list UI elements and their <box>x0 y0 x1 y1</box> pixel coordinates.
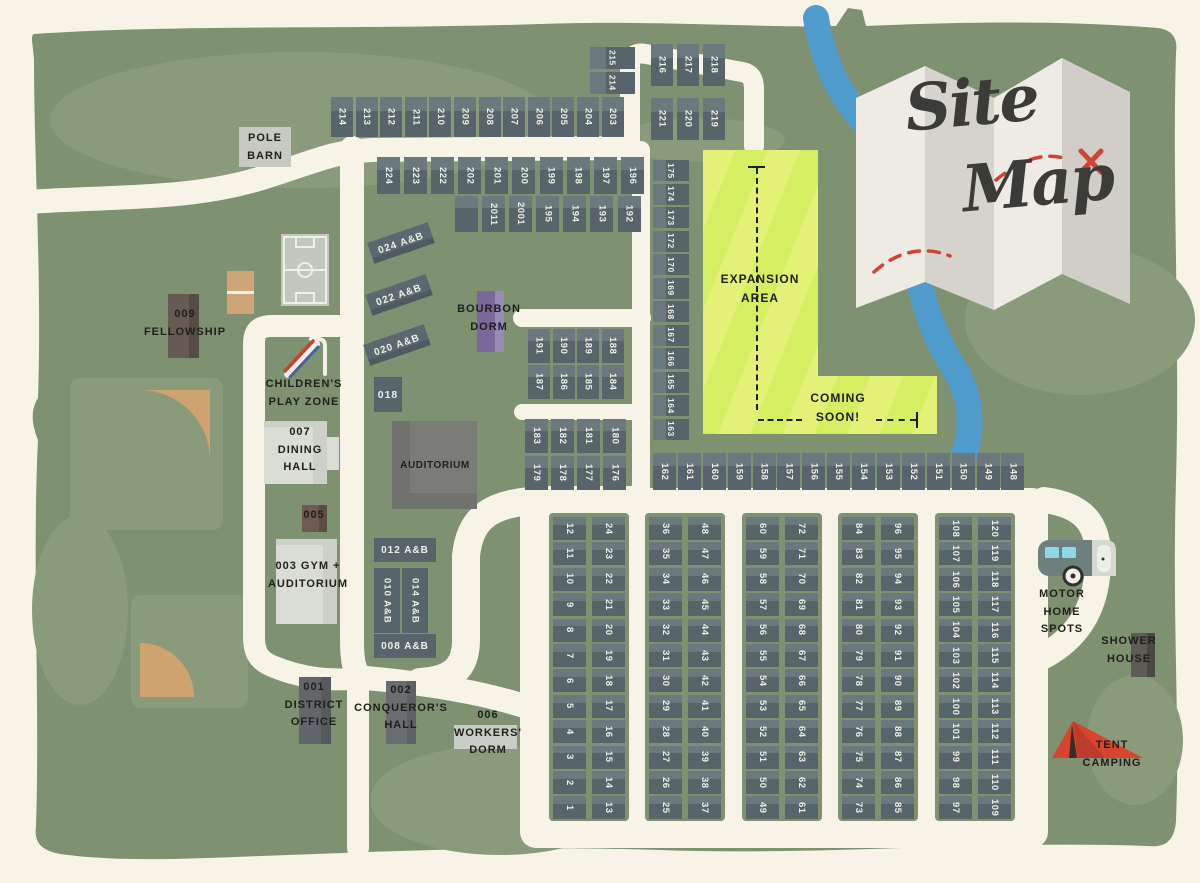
site-cell: 197 <box>594 157 617 194</box>
site-cell: 66 <box>785 669 818 692</box>
site-cell: 104 <box>939 619 972 642</box>
site-cell: 2011 <box>482 196 505 232</box>
site-cell: 206 <box>528 97 550 137</box>
site-cell: 17 <box>592 695 625 718</box>
sites-col-36-25: 363534333231302928272625 <box>649 517 682 819</box>
site-cell: 92 <box>881 619 914 642</box>
site-cell: 208 <box>479 97 501 137</box>
site-cell: 210 <box>429 97 451 137</box>
site-cell: 94 <box>881 568 914 591</box>
site-cell: 155 <box>827 453 850 490</box>
site-cell: 33 <box>649 593 682 616</box>
site-cell: 76 <box>842 720 875 743</box>
site-cell: 80 <box>842 619 875 642</box>
site-cell: 221 <box>651 98 673 140</box>
site-cell: 89 <box>881 695 914 718</box>
site-cell: 56 <box>746 619 779 642</box>
site-cell: 189 <box>577 329 599 363</box>
site-cell: 218 <box>703 44 725 86</box>
site-cell: 26 <box>649 771 682 794</box>
site-cell: 96 <box>881 517 914 540</box>
site-cell: 185 <box>577 365 599 399</box>
site-cell: 102 <box>939 669 972 692</box>
site-cell: 109 <box>978 796 1011 819</box>
tent-camping-label: TENTCAMPING <box>1083 737 1142 772</box>
sites-row-187-184: 187186185184 <box>528 365 624 399</box>
sites-col-84-73: 848382818079787776757473 <box>842 517 875 819</box>
site-cell: 166 <box>653 348 689 369</box>
site-cell: 114 <box>978 669 1011 692</box>
site-cell: 205 <box>552 97 574 137</box>
site-cell: 164 <box>653 395 689 416</box>
site-cell: 173 <box>653 207 689 228</box>
site-cell: 11 <box>553 542 586 565</box>
site-cell: 97 <box>939 796 972 819</box>
site-cell: 4 <box>553 720 586 743</box>
site-cell: 152 <box>902 453 925 490</box>
site-cell: 6 <box>553 669 586 692</box>
site-cell: 159 <box>728 453 751 490</box>
site-cell: 108 <box>939 517 972 540</box>
shower-house-label: SHOWERHOUSE <box>1101 633 1157 668</box>
site-cell: 71 <box>785 542 818 565</box>
site-cell: 13 <box>592 796 625 819</box>
site-cell: 177 <box>577 456 600 490</box>
site-cell: 31 <box>649 644 682 667</box>
site-cell: 51 <box>746 746 779 769</box>
expansion-area-label: EXPANSIONAREA <box>721 270 800 308</box>
site-cell: 70 <box>785 568 818 591</box>
site-cell: 118 <box>978 568 1011 591</box>
site-cell: 43 <box>688 644 721 667</box>
site-cell: 182 <box>551 419 574 453</box>
site-cell: 219 <box>703 98 725 140</box>
site-cell: 69 <box>785 593 818 616</box>
site-cell: 50 <box>746 771 779 794</box>
site-cell: 67 <box>785 644 818 667</box>
site-cell: 57 <box>746 593 779 616</box>
building-008ab: 008 A&B <box>374 634 436 658</box>
site-cell: 99 <box>939 746 972 769</box>
site-cell: 176 <box>603 456 626 490</box>
site-cell: 148 <box>1001 453 1024 490</box>
site-cell: 209 <box>454 97 476 137</box>
site-cell: 165 <box>653 372 689 393</box>
site-cell: 179 <box>525 456 548 490</box>
site-cell: 52 <box>746 720 779 743</box>
site-cell: 151 <box>927 453 950 490</box>
site-cell: 64 <box>785 720 818 743</box>
site-cell: 42 <box>688 669 721 692</box>
site-cell: 18 <box>592 669 625 692</box>
sites-row-183-180: 183182181180 <box>525 419 626 453</box>
site-cell: 181 <box>577 419 600 453</box>
site-cell: 62 <box>785 771 818 794</box>
site-cell: 21 <box>592 593 625 616</box>
site-cell: 84 <box>842 517 875 540</box>
site-cell: 161 <box>678 453 701 490</box>
site-cell: 20 <box>592 619 625 642</box>
title-site: Site <box>902 66 1040 141</box>
sites-col-72-61: 727170696867666564636261 <box>785 517 818 819</box>
site-cell: 163 <box>653 419 689 440</box>
site-cell: 200 <box>512 157 535 194</box>
coming-soon-label: COMINGSOON! <box>810 389 865 427</box>
site-cell: 214 <box>590 72 635 94</box>
site-cell: 220 <box>677 98 699 140</box>
site-cell: 22 <box>592 568 625 591</box>
site-cell: 29 <box>649 695 682 718</box>
site-cell: 95 <box>881 542 914 565</box>
district-office-label: 001DISTRICTOFFICE <box>285 679 344 732</box>
site-cell: 32 <box>649 619 682 642</box>
site-cell: 217 <box>677 44 699 86</box>
site-cell: 59 <box>746 542 779 565</box>
site-cell: 12 <box>553 517 586 540</box>
site-cell: 25 <box>649 796 682 819</box>
site-cell: 192 <box>618 196 641 232</box>
site-cell: 119 <box>978 542 1011 565</box>
site-cell: 14 <box>592 771 625 794</box>
sites-row-224-196: 224223222202201200199198197196 <box>377 157 644 194</box>
sites-row-216-218: 216217218 <box>651 44 725 86</box>
site-cell: 1 <box>553 796 586 819</box>
site-cell: 55 <box>746 644 779 667</box>
site-cell: 194 <box>563 196 586 232</box>
site-cell: 105 <box>939 593 972 616</box>
site-cell: 37 <box>688 796 721 819</box>
site-cell: 111 <box>978 746 1011 769</box>
site-cell: 214 <box>331 97 353 137</box>
title-map: Map <box>959 146 1115 223</box>
site-cell: 90 <box>881 669 914 692</box>
site-cell: 40 <box>688 720 721 743</box>
site-cell: 60 <box>746 517 779 540</box>
sites-row-179-176: 179178177176 <box>525 456 626 490</box>
site-cell: 117 <box>978 593 1011 616</box>
site-cell: 46 <box>688 568 721 591</box>
dining-hall-annex <box>327 437 339 470</box>
site-cell: 45 <box>688 593 721 616</box>
sites-col-175-163: 175174173172170169168167166165164163 <box>653 160 689 440</box>
site-cell: 38 <box>688 771 721 794</box>
site-cell: 93 <box>881 593 914 616</box>
site-cell: 203 <box>602 97 624 137</box>
measure-tick <box>916 412 918 428</box>
site-cell: 157 <box>777 453 800 490</box>
site-cell: 54 <box>746 669 779 692</box>
site-cell: 187 <box>528 365 550 399</box>
site-cell: 39 <box>688 746 721 769</box>
sites-row-214-203: 214213212211210209208207206205204203 <box>331 97 624 137</box>
measure-line-horizontal <box>758 419 802 421</box>
site-cell: 202 <box>458 157 481 194</box>
site-cell: 44 <box>688 619 721 642</box>
site-cell: 180 <box>603 419 626 453</box>
site-cell: 154 <box>852 453 875 490</box>
site-cell: 49 <box>746 796 779 819</box>
bourbon-dorm-label: BOURBONDORM <box>457 301 521 336</box>
site-cell: 91 <box>881 644 914 667</box>
site-cell: 98 <box>939 771 972 794</box>
site-cell: 85 <box>881 796 914 819</box>
site-cell: 116 <box>978 619 1011 642</box>
site-cell: 63 <box>785 746 818 769</box>
site-cell: 212 <box>380 97 402 137</box>
site-cell: 5 <box>553 695 586 718</box>
fellowship-label: 009FELLOWSHIP <box>144 306 226 341</box>
site-cell: 172 <box>653 231 689 252</box>
site-cell: 222 <box>431 157 454 194</box>
site-cell: 72 <box>785 517 818 540</box>
site-cell: 113 <box>978 695 1011 718</box>
building-014ab: 014 A&B <box>402 568 428 633</box>
site-cell: 86 <box>881 771 914 794</box>
site-cell: 170 <box>653 254 689 275</box>
site-cell: 223 <box>404 157 427 194</box>
site-cell: 216 <box>651 44 673 86</box>
site-cell: 153 <box>877 453 900 490</box>
site-cell: 199 <box>540 157 563 194</box>
site-cell: 34 <box>649 568 682 591</box>
dining-hall-label: 007DININGHALL <box>278 424 323 477</box>
site-cell: 120 <box>978 517 1011 540</box>
sites-col-12-1: 121110987654321 <box>553 517 586 819</box>
site-cell: 150 <box>952 453 975 490</box>
site-cell: 213 <box>356 97 378 137</box>
site-cell: 36 <box>649 517 682 540</box>
site-cell: 8 <box>553 619 586 642</box>
camper-icon <box>1036 528 1128 594</box>
site-cell: 201 <box>485 157 508 194</box>
site-cell: 193 <box>590 196 613 232</box>
site-cell: 16 <box>592 720 625 743</box>
site-cell: 61 <box>785 796 818 819</box>
site-cell: 58 <box>746 568 779 591</box>
site-cell: 30 <box>649 669 682 692</box>
site-cell: 53 <box>746 695 779 718</box>
sites-col-48-37: 484746454443424140393837 <box>688 517 721 819</box>
site-cell: 207 <box>503 97 525 137</box>
pole-barn-label: POLEBARN <box>247 130 283 165</box>
childrens-play-zone-label: CHILDREN'SPLAY ZONE <box>266 376 343 411</box>
site-cell: 83 <box>842 542 875 565</box>
auditorium-label: AUDITORIUM <box>400 458 470 474</box>
site-cell: 23 <box>592 542 625 565</box>
gym-auditorium-label: 003 GYM +AUDITORIUM <box>268 558 348 593</box>
building-012ab: 012 A&B <box>374 538 436 562</box>
site-cell: 184 <box>602 365 624 399</box>
building-010ab: 010 A&B <box>374 568 400 633</box>
site-cell: 204 <box>577 97 599 137</box>
site-cell: 3 <box>553 746 586 769</box>
site-cell: 106 <box>939 568 972 591</box>
site-cell: 82 <box>842 568 875 591</box>
site-cell: 87 <box>881 746 914 769</box>
site-cell: 101 <box>939 720 972 743</box>
site-cell: 88 <box>881 720 914 743</box>
sites-row-221-219: 221220219 <box>651 98 725 140</box>
site-cell <box>455 196 478 232</box>
sites-col-96-85: 969594939291908988878685 <box>881 517 914 819</box>
site-cell: 115 <box>978 644 1011 667</box>
site-cell: 9 <box>553 593 586 616</box>
site-cell: 48 <box>688 517 721 540</box>
site-cell: 162 <box>653 453 676 490</box>
site-cell: 110 <box>978 771 1011 794</box>
sites-row-162-148: 1621611601591581571561551541531521511501… <box>653 453 1024 490</box>
sites-row-191-188: 191190189188 <box>528 329 624 363</box>
site-cell: 68 <box>785 619 818 642</box>
building-018: 018 <box>374 377 402 412</box>
volleyball-court <box>227 271 254 314</box>
sites-pair-215-214: 215214 <box>590 47 635 94</box>
site-cell: 175 <box>653 160 689 181</box>
sites-col-120-109: 120119118117116115114113112111110109 <box>978 517 1011 819</box>
building-005-label: 005 <box>303 507 324 525</box>
site-cell: 47 <box>688 542 721 565</box>
site-cell: 198 <box>567 157 590 194</box>
site-cell: 79 <box>842 644 875 667</box>
site-cell: 211 <box>405 97 427 137</box>
site-cell: 112 <box>978 720 1011 743</box>
site-cell: 74 <box>842 771 875 794</box>
site-cell: 10 <box>553 568 586 591</box>
site-cell: 178 <box>551 456 574 490</box>
site-cell: 41 <box>688 695 721 718</box>
site-cell: 75 <box>842 746 875 769</box>
site-cell: 77 <box>842 695 875 718</box>
site-cell: 103 <box>939 644 972 667</box>
motor-home-label: MOTORHOMESPOTS <box>1039 586 1085 639</box>
site-cell: 156 <box>802 453 825 490</box>
workers-dorm-label: 006WORKERS'DORM <box>454 707 522 760</box>
measure-line-horizontal <box>876 419 916 421</box>
site-cell: 190 <box>553 329 575 363</box>
site-cell: 7 <box>553 644 586 667</box>
sites-col-24-13: 242322212019181716151413 <box>592 517 625 819</box>
sites-col-60-49: 605958575655545352515049 <box>746 517 779 819</box>
site-cell: 35 <box>649 542 682 565</box>
site-cell: 186 <box>553 365 575 399</box>
site-cell: 224 <box>377 157 400 194</box>
basketball-court <box>281 234 329 306</box>
site-map-illustration: EXPANSIONAREA COMINGSOON! 21421321221121… <box>0 0 1200 883</box>
site-cell: 188 <box>602 329 624 363</box>
site-cell: 81 <box>842 593 875 616</box>
site-cell: 19 <box>592 644 625 667</box>
site-cell: 15 <box>592 746 625 769</box>
site-cell: 169 <box>653 278 689 299</box>
site-cell: 158 <box>753 453 776 490</box>
site-cell: 183 <box>525 419 548 453</box>
site-cell: 149 <box>977 453 1000 490</box>
site-cell: 196 <box>621 157 644 194</box>
site-cell: 2001 <box>509 196 532 232</box>
site-cell: 27 <box>649 746 682 769</box>
site-cell: 160 <box>703 453 726 490</box>
site-cell: 28 <box>649 720 682 743</box>
site-cell: 24 <box>592 517 625 540</box>
site-cell: 191 <box>528 329 550 363</box>
site-cell: 215 <box>590 47 635 69</box>
site-cell: 78 <box>842 669 875 692</box>
site-cell: 73 <box>842 796 875 819</box>
site-cell: 168 <box>653 301 689 322</box>
site-cell: 195 <box>536 196 559 232</box>
site-cell: 2 <box>553 771 586 794</box>
site-cell: 167 <box>653 325 689 346</box>
site-cell: 100 <box>939 695 972 718</box>
sites-row-2011-192: 20112001195194193192 <box>455 196 641 232</box>
site-cell: 107 <box>939 542 972 565</box>
site-cell: 65 <box>785 695 818 718</box>
sites-col-108-97: 108107106105104103102100101999897 <box>939 517 972 819</box>
site-cell: 174 <box>653 184 689 205</box>
conquerors-hall-label: 002CONQUEROR'SHALL <box>354 682 448 735</box>
